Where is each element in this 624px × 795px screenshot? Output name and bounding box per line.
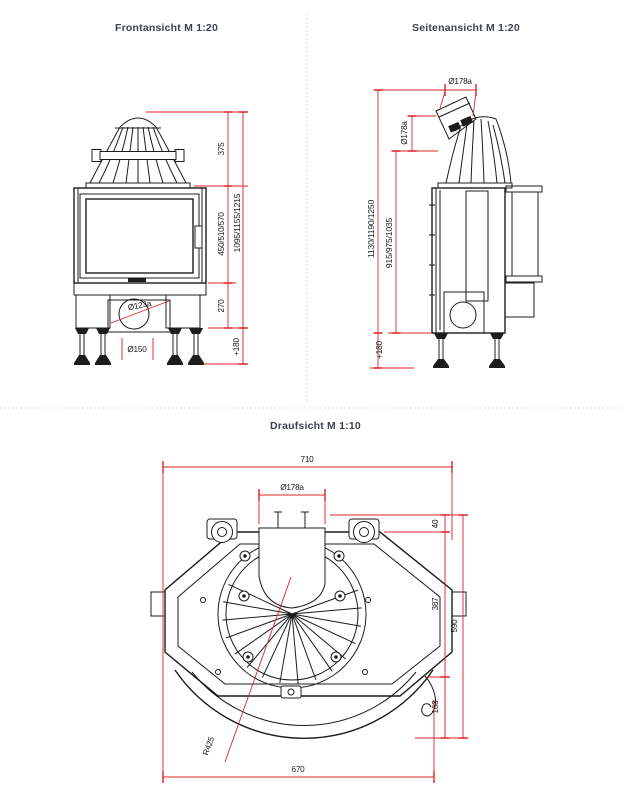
side-heat-shield — [512, 192, 538, 276]
side-dim-flue-top: Ø178a — [448, 77, 472, 86]
front-dim-foot-circle: Ø150 — [127, 345, 147, 354]
side-view-drawing — [429, 97, 542, 368]
top-flue-duct — [259, 512, 325, 608]
front-view-drawing — [74, 118, 206, 365]
technical-drawing-page: Frontansicht M 1:20 Seitenansicht M 1:20… — [0, 0, 624, 795]
panel-dividers — [0, 14, 624, 408]
front-dim-door-height: 450/510/570 — [217, 212, 226, 256]
top-dim-door-radius: R425 — [201, 735, 216, 756]
top-dim-flue-diameter: Ø178a — [280, 483, 304, 492]
drawing-canvas: 375 450/510/570 270 1095/1155/1215 +180 … — [0, 0, 624, 795]
side-body — [429, 186, 542, 333]
front-dim-total-height: 1095/1155/1215 — [232, 193, 242, 252]
front-dim-plinth-height: 270 — [217, 299, 226, 313]
front-firebox — [74, 188, 206, 283]
top-dim-rear-depth: 40 — [431, 519, 440, 528]
top-dim-front-depth: 163 — [431, 700, 440, 714]
front-dim-dome-height: 375 — [217, 142, 226, 156]
front-dome — [86, 118, 190, 188]
side-flue-stub — [436, 97, 476, 139]
side-view-dimensions: Ø178a Ø178a 1130/1190/1250 915/975/1035 … — [366, 77, 476, 368]
top-view-dimensions: 710 Ø178a 40 387 590 163 670 R425 — [163, 455, 468, 783]
side-air-inlet-circle — [450, 302, 476, 328]
side-dim-body-height: 915/975/1035 — [384, 217, 394, 268]
top-dim-overall-width: 710 — [300, 455, 314, 464]
front-door-handle — [195, 226, 202, 248]
side-legs — [433, 333, 505, 368]
side-dim-flue-vertical: Ø178a — [400, 121, 409, 145]
top-dim-front-width: 670 — [291, 765, 305, 774]
top-right-tab — [452, 592, 466, 616]
top-dim-overall-depth: 590 — [450, 619, 459, 633]
side-dim-feet-height: +180 — [375, 341, 384, 359]
front-dim-feet-height: +180 — [232, 338, 241, 356]
side-dim-total-height: 1130/1190/1250 — [366, 200, 376, 258]
top-radius-leader — [225, 577, 291, 762]
top-view-drawing — [151, 512, 466, 738]
top-dim-mid-depth: 387 — [431, 597, 440, 611]
